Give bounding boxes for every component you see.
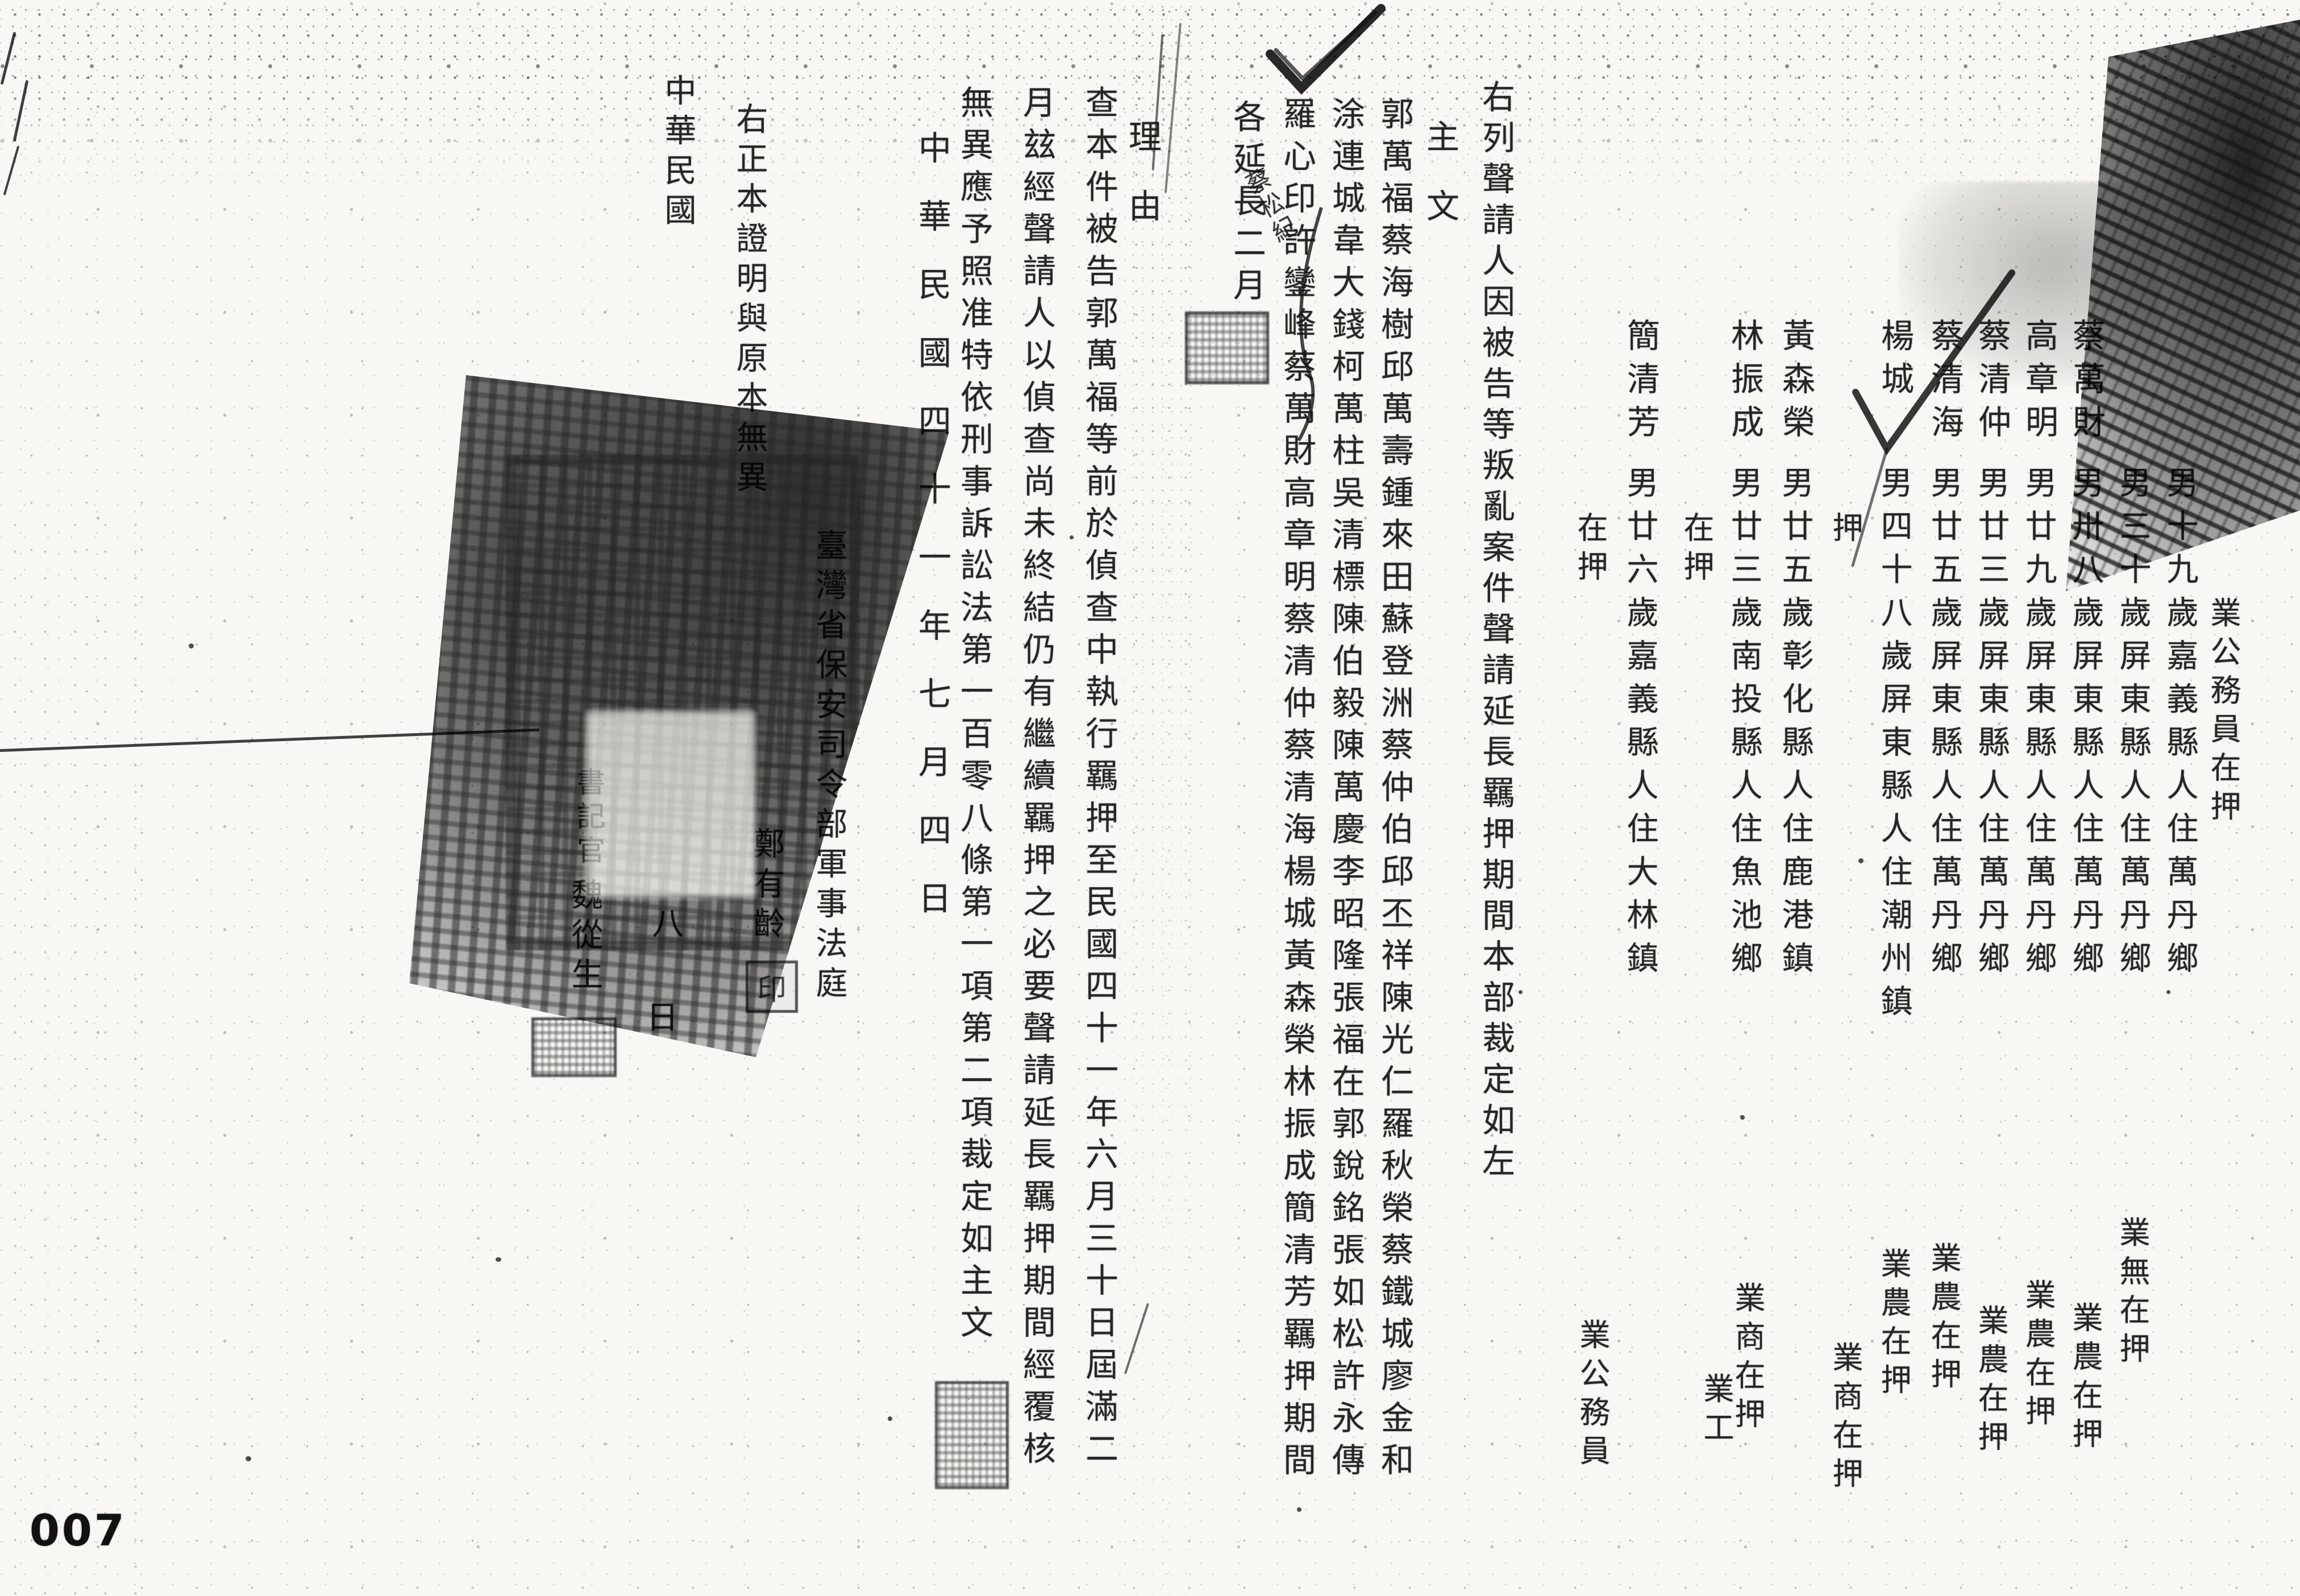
check-mark-large — [1262, 0, 1387, 97]
person-4-status: 業農在押 — [2015, 1279, 2060, 1433]
person-9-name: 黃森榮 — [1772, 318, 1820, 448]
ink-blot — [1070, 535, 1074, 539]
person-7-status: 業農在押 — [1871, 1248, 1916, 1402]
person-11-custody: 在押 — [1567, 512, 1612, 589]
person-11-details: 男廿六歲嘉義縣人住大林鎮 — [1617, 466, 1663, 984]
ink-blot — [496, 1257, 501, 1262]
verification-stamp-illegible — [1185, 311, 1269, 384]
person-11-name: 簡清芳 — [1617, 318, 1665, 448]
ink-blot — [189, 643, 194, 649]
reason-line-3: 無異應予照准特依刑事訴訟法第一百零八條第一項第二項裁定如主文 — [950, 85, 998, 1347]
ruling-caption: 右列聲請人因被告等叛亂案件聲請延長羈押期間本部裁定如左 — [1472, 80, 1520, 1184]
ink-blot — [888, 1416, 892, 1421]
verification-stamp-illegible-2 — [935, 1381, 1009, 1489]
person-9-details: 男廿五歲彰化縣人住鹿港鎮 — [1772, 466, 1818, 984]
scan-noise-left-band — [0, 512, 148, 1596]
corner-stroke-3 — [3, 146, 20, 196]
official-seal-light-patch — [585, 710, 756, 898]
main-text-line-1: 郭萬福蔡海樹邱萬壽鍾來田蘇登洲蔡仲伯邱丕祥陳光仁羅秋榮蔡鐵城廖金和 — [1371, 97, 1419, 1485]
corner-stroke-1 — [1, 32, 16, 85]
main-text-header: 主文 — [1416, 119, 1464, 258]
person-10-details: 男廿三歲南投縣人住魚池鄉 — [1721, 466, 1767, 984]
ink-blot — [1858, 858, 1864, 863]
ink-blot — [246, 1456, 251, 1461]
clerk-seal-illegible — [531, 1017, 617, 1077]
person-8-status: 業商在押 — [1823, 1341, 1868, 1496]
stamp-smudge — [1898, 182, 2160, 386]
ink-blot — [1297, 1507, 1301, 1512]
person-1-status: 業公務員在押 — [2201, 597, 2245, 829]
official-seal-large — [398, 358, 972, 1114]
person-10-custody: 在押 — [1674, 512, 1719, 589]
person-10-status: 業工 — [1694, 1373, 1738, 1450]
person-6-status: 業農在押 — [1921, 1242, 1966, 1396]
page-number: 007 — [30, 1505, 127, 1556]
person-10-name: 林振成 — [1721, 318, 1769, 448]
person-2-status: 業無在押 — [2110, 1216, 2155, 1371]
scratch-stroke — [1124, 1303, 1149, 1374]
reason-line-1: 查本件被告郭萬福等前於偵查中執行羈押至民國四十一年六月三十日屆滿二 — [1075, 85, 1123, 1473]
person-3-status: 業農在押 — [2062, 1302, 2107, 1456]
person-5-status: 業農在押 — [1968, 1304, 2013, 1459]
ink-blot — [1740, 1115, 1745, 1120]
person-11-status: 業公務員 — [1570, 1319, 1615, 1473]
reason-line-2: 月玆經聲請人以偵查尚未終結仍有繼續羈押之必要聲請延長羈押期間經覆核 — [1013, 85, 1060, 1473]
corner-stroke-2 — [13, 80, 29, 142]
insertion-caret-line — [1267, 205, 1347, 443]
cert-date-prefix: 中華民國 — [655, 74, 701, 233]
ink-blot — [1519, 990, 1523, 994]
scanned-court-document: { "page_number": "007", "right_page": { … — [0, 0, 2300, 1596]
spine-stroke-2 — [1164, 23, 1182, 193]
ink-blot — [2166, 990, 2170, 994]
reason-header: 理由 — [1118, 119, 1166, 258]
